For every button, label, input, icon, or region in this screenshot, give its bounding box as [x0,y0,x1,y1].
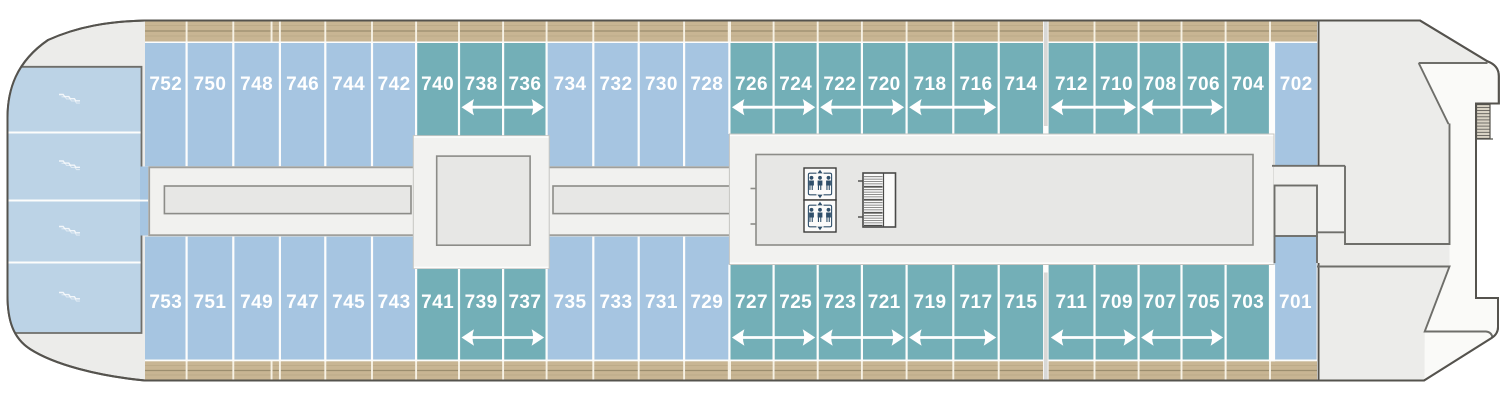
svg-text:738: 738 [465,74,498,95]
svg-text:705: 705 [1187,292,1220,313]
svg-text:712: 712 [1055,74,1088,95]
svg-text:735: 735 [554,292,587,313]
svg-text:703: 703 [1231,292,1264,313]
svg-text:722: 722 [823,74,856,95]
svg-text:711: 711 [1055,292,1087,313]
svg-text:702: 702 [1280,74,1313,95]
svg-text:740: 740 [421,74,454,95]
svg-text:720: 720 [868,74,901,95]
svg-text:741: 741 [421,292,454,313]
svg-text:718: 718 [914,74,947,95]
svg-text:706: 706 [1187,74,1220,95]
svg-text:742: 742 [378,74,411,95]
svg-text:717: 717 [960,292,993,313]
svg-text:724: 724 [779,74,812,95]
svg-text:704: 704 [1231,74,1264,95]
svg-text:743: 743 [378,292,411,313]
svg-text:708: 708 [1144,74,1177,95]
svg-text:745: 745 [332,292,365,313]
svg-text:734: 734 [554,74,587,95]
svg-text:719: 719 [914,292,947,313]
svg-text:714: 714 [1004,74,1037,95]
svg-text:710: 710 [1100,74,1133,95]
svg-text:716: 716 [960,74,993,95]
svg-text:752: 752 [149,74,182,95]
svg-text:727: 727 [735,292,768,313]
svg-text:749: 749 [240,292,273,313]
svg-text:709: 709 [1100,292,1133,313]
svg-text:730: 730 [645,74,678,95]
svg-text:728: 728 [690,74,723,95]
svg-text:746: 746 [286,74,319,95]
svg-text:733: 733 [600,292,633,313]
svg-text:753: 753 [149,292,182,313]
svg-text:748: 748 [240,74,273,95]
svg-text:737: 737 [508,292,541,313]
svg-text:732: 732 [600,74,633,95]
svg-text:723: 723 [823,292,856,313]
svg-text:721: 721 [868,292,901,313]
svg-text:747: 747 [286,292,319,313]
svg-text:744: 744 [332,74,365,95]
svg-text:707: 707 [1144,292,1177,313]
svg-text:750: 750 [193,74,226,95]
svg-text:726: 726 [735,74,768,95]
svg-text:736: 736 [508,74,541,95]
svg-text:725: 725 [779,292,812,313]
svg-text:739: 739 [465,292,498,313]
svg-text:731: 731 [645,292,678,313]
svg-text:715: 715 [1004,292,1037,313]
svg-text:729: 729 [690,292,723,313]
svg-text:701: 701 [1279,292,1312,313]
svg-text:751: 751 [193,292,226,313]
